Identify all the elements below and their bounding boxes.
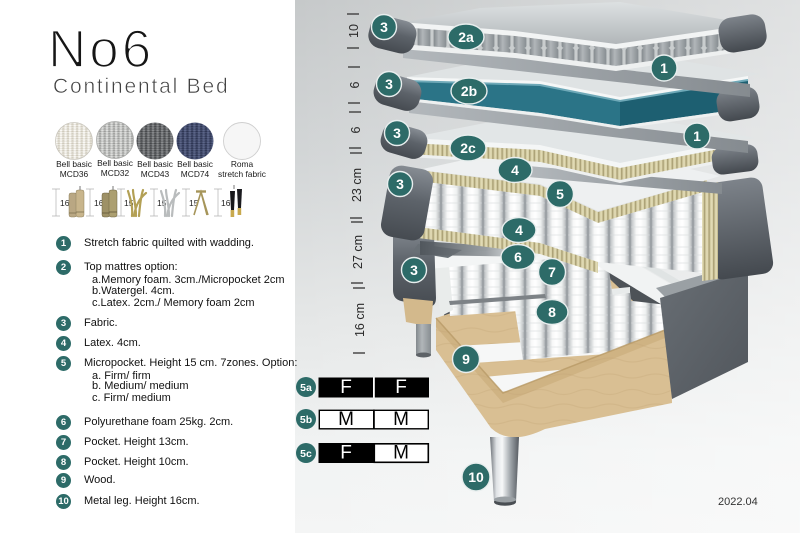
svg-text:5c: 5c <box>300 448 312 460</box>
svg-text:M: M <box>393 443 409 464</box>
svg-text:6: 6 <box>514 249 522 265</box>
svg-text:F: F <box>340 443 352 464</box>
svg-text:2c: 2c <box>460 140 476 156</box>
svg-text:3: 3 <box>410 262 418 278</box>
svg-text:3: 3 <box>380 19 388 35</box>
svg-text:M: M <box>393 409 409 430</box>
svg-text:5a: 5a <box>300 382 312 394</box>
svg-text:23 cm: 23 cm <box>350 168 364 202</box>
svg-text:6: 6 <box>348 81 362 88</box>
svg-text:9: 9 <box>462 351 470 367</box>
svg-text:F: F <box>340 377 352 398</box>
svg-text:7: 7 <box>548 264 556 280</box>
svg-text:27 cm: 27 cm <box>351 235 365 269</box>
svg-text:4: 4 <box>515 222 523 238</box>
svg-text:5: 5 <box>556 186 564 202</box>
svg-text:3: 3 <box>393 125 401 141</box>
svg-text:2b: 2b <box>461 83 477 99</box>
svg-text:5b: 5b <box>300 414 312 426</box>
svg-text:M: M <box>338 409 354 430</box>
svg-text:8: 8 <box>548 304 556 320</box>
svg-text:1: 1 <box>660 60 668 76</box>
svg-text:3: 3 <box>396 176 404 192</box>
svg-text:1: 1 <box>693 128 701 144</box>
svg-text:2a: 2a <box>458 29 474 45</box>
svg-text:4: 4 <box>511 162 519 178</box>
svg-text:F: F <box>395 377 407 398</box>
svg-text:10: 10 <box>347 24 361 38</box>
svg-text:3: 3 <box>385 76 393 92</box>
svg-text:6: 6 <box>349 126 363 133</box>
svg-text:10: 10 <box>468 469 484 485</box>
svg-text:16 cm: 16 cm <box>353 303 367 337</box>
